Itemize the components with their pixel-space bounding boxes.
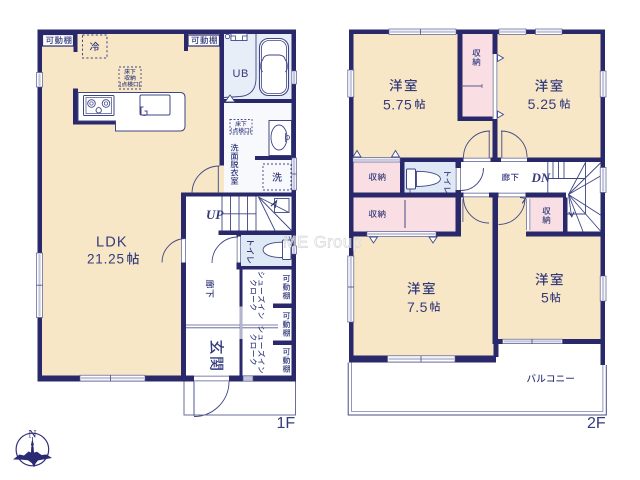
svg-text:DN: DN [531,170,551,185]
svg-text:UP: UP [206,207,224,222]
svg-text:UB: UB [233,68,249,80]
svg-text:7.5: 7.5 [407,299,428,315]
svg-text:1F: 1F [277,415,296,432]
svg-text:2F: 2F [587,415,606,432]
svg-text:LDK: LDK [96,235,128,251]
svg-text:5.75: 5.75 [383,96,412,112]
svg-text:5.25: 5.25 [528,96,557,112]
svg-text:5: 5 [541,290,549,306]
svg-text:21.25: 21.25 [87,251,125,266]
svg-text:ME Group: ME Group [283,233,362,251]
